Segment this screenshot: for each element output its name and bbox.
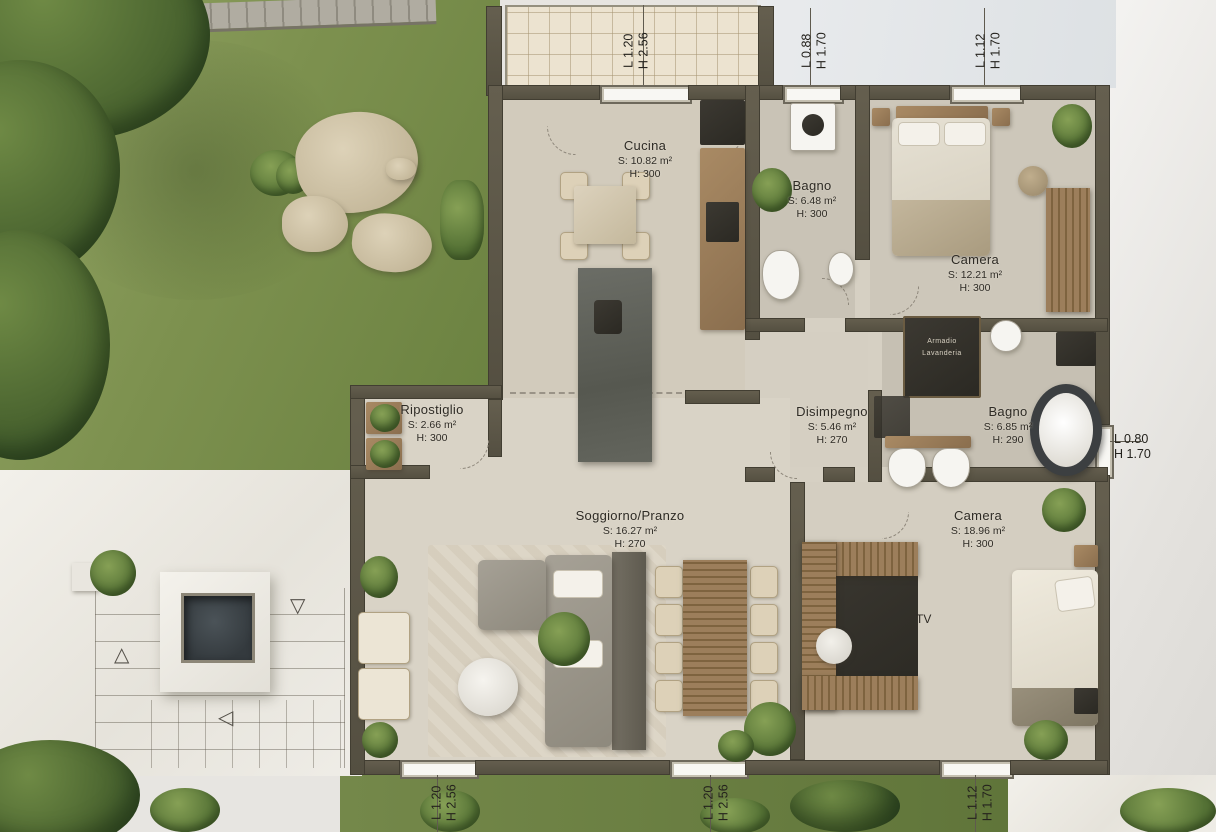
toilet bbox=[888, 448, 926, 488]
sofa-console bbox=[612, 552, 646, 750]
room-name: Camera bbox=[915, 252, 1035, 269]
wall-right bbox=[1095, 85, 1110, 425]
dim-width: L 1.20 bbox=[701, 767, 716, 832]
window-top-left bbox=[600, 85, 692, 104]
patio-side-wall bbox=[486, 6, 502, 96]
dim-width: L 1.20 bbox=[429, 767, 444, 832]
room-area: S: 2.66 m² bbox=[372, 419, 492, 432]
garden-reeds bbox=[440, 180, 484, 260]
room-height: H: 300 bbox=[915, 282, 1035, 295]
wall-lower-horizontal bbox=[745, 467, 775, 482]
wall-left-upper bbox=[488, 85, 503, 400]
room-area: S: 18.96 m² bbox=[918, 525, 1038, 538]
wall-kitchen-stub bbox=[685, 390, 760, 404]
kitchen-table bbox=[574, 186, 636, 244]
room-area: S: 12.21 m² bbox=[915, 269, 1035, 282]
dim-width: L 1.12 bbox=[965, 767, 980, 832]
terrace-stairs-lower bbox=[125, 700, 343, 768]
dining-chair bbox=[655, 566, 683, 598]
coffee-table bbox=[458, 658, 518, 716]
bedroom-plant bbox=[1024, 720, 1068, 760]
dining-chair bbox=[655, 642, 683, 674]
patio-side-wall bbox=[758, 6, 774, 96]
room-height: H: 300 bbox=[918, 538, 1038, 551]
nightstand bbox=[1074, 545, 1098, 567]
dim-width: L 0.80 bbox=[1114, 432, 1170, 447]
room-label-bagno-right: Bagno S: 6.85 m² H: 290 bbox=[948, 404, 1068, 448]
room-name: Cucina bbox=[585, 138, 705, 155]
outdoor-right-area bbox=[1108, 0, 1216, 832]
bottom-right-bush bbox=[1120, 788, 1216, 832]
dim-bottom-left: L 1.20 H 2.56 bbox=[429, 767, 459, 832]
bed-pillow bbox=[944, 122, 986, 146]
sofa-chaise bbox=[478, 560, 546, 630]
bedroom-plant bbox=[1052, 104, 1092, 148]
stair-arrow-down-icon: ▽ bbox=[290, 596, 305, 616]
dim-width: L 1.20 bbox=[621, 15, 636, 87]
planter bbox=[362, 722, 398, 758]
dining-chair bbox=[655, 680, 683, 712]
wall-bottom bbox=[1010, 760, 1108, 775]
room-area: S: 10.82 m² bbox=[585, 155, 705, 168]
closet-label: Armadio Lavanderia bbox=[905, 336, 979, 360]
bidet bbox=[932, 448, 970, 488]
dim-right: L 0.80 H 1.70 bbox=[1114, 432, 1170, 462]
wall-top bbox=[688, 85, 783, 100]
wall-top bbox=[488, 85, 600, 100]
vanity-counter bbox=[1056, 332, 1096, 366]
window-top-right bbox=[950, 85, 1024, 104]
living-plant bbox=[718, 730, 754, 762]
dim-bottom-middle: L 1.20 H 2.56 bbox=[701, 767, 731, 832]
nightstand bbox=[992, 108, 1010, 126]
wall-bottom bbox=[475, 760, 670, 775]
room-label-camera-bottom: Camera S: 18.96 m² H: 300 bbox=[918, 508, 1038, 552]
room-label-ripostiglio: Ripostiglio S: 2.66 m² H: 300 bbox=[372, 402, 492, 446]
round-basin bbox=[990, 320, 1022, 352]
wardrobe bbox=[1046, 188, 1090, 312]
palm-plant bbox=[150, 788, 220, 832]
bed-pillow bbox=[1054, 576, 1096, 613]
room-label-soggiorno: Soggiorno/Pranzo S: 16.27 m² H: 270 bbox=[550, 508, 710, 552]
wall-kitchen-right bbox=[745, 85, 760, 340]
room-label-bagno-top: Bagno S: 6.48 m² H: 300 bbox=[762, 178, 862, 222]
room-area: S: 16.27 m² bbox=[550, 525, 710, 538]
oven bbox=[706, 202, 739, 242]
side-table bbox=[816, 628, 852, 664]
wall-mid-horizontal bbox=[745, 318, 805, 332]
room-name: Camera bbox=[918, 508, 1038, 525]
closet-label-line2: Lavanderia bbox=[905, 348, 979, 360]
dim-width: L 0.88 bbox=[799, 15, 814, 87]
wall-lower-horizontal bbox=[823, 467, 855, 482]
room-name: Bagno bbox=[948, 404, 1068, 421]
planter bbox=[360, 556, 398, 598]
wall-mid-horizontal bbox=[845, 318, 905, 332]
lounge-chair bbox=[358, 668, 410, 720]
bedroom-stool bbox=[1074, 688, 1098, 714]
dim-top-middle: L 0.88 H 1.70 bbox=[799, 15, 829, 87]
lounge-chair bbox=[358, 612, 410, 664]
room-label-cucina: Cucina S: 10.82 m² H: 300 bbox=[585, 138, 705, 182]
room-height: H: 290 bbox=[948, 434, 1068, 447]
living-plant bbox=[538, 612, 590, 666]
room-label-disimpegno: Disimpegno S: 5.46 m² H: 270 bbox=[772, 404, 892, 448]
kitchen-island bbox=[578, 268, 652, 462]
wall-storage-top bbox=[350, 385, 502, 399]
island-sink bbox=[594, 300, 622, 334]
dining-chair bbox=[655, 604, 683, 636]
closet-label-line1: Armadio bbox=[905, 336, 979, 348]
dim-top-left: L 1.20 H 2.56 bbox=[621, 15, 651, 87]
plunge-pool bbox=[181, 593, 255, 663]
room-height: H: 300 bbox=[585, 168, 705, 181]
floor-plan-render: △ ◁ ▽ Armadio bbox=[0, 0, 1216, 832]
dim-width: L 1.12 bbox=[973, 15, 988, 87]
dim-height: H 1.70 bbox=[980, 767, 995, 832]
room-area: S: 6.48 m² bbox=[762, 195, 862, 208]
room-area: S: 6.85 m² bbox=[948, 421, 1068, 434]
bottom-shrub bbox=[790, 780, 900, 832]
wall-bottom bbox=[745, 760, 940, 775]
room-area: S: 5.46 m² bbox=[772, 421, 892, 434]
stair-arrow-left-icon: ◁ bbox=[218, 708, 233, 728]
dining-chair bbox=[750, 642, 778, 674]
room-height: H: 270 bbox=[772, 434, 892, 447]
dim-height: H 2.56 bbox=[444, 767, 459, 832]
room-name: Soggiorno/Pranzo bbox=[550, 508, 710, 525]
round-stool bbox=[1018, 166, 1048, 196]
bathroom-plant bbox=[1042, 488, 1086, 532]
stone-path-pebble bbox=[386, 158, 416, 180]
room-height: H: 300 bbox=[762, 208, 862, 221]
tv-label: TV bbox=[916, 612, 931, 626]
room-height: H: 300 bbox=[372, 432, 492, 445]
stair-arrow-up-icon: △ bbox=[114, 645, 129, 665]
room-height: H: 270 bbox=[550, 538, 710, 551]
dim-bottom-right: L 1.12 H 1.70 bbox=[965, 767, 995, 832]
room-name: Disimpegno bbox=[772, 404, 892, 421]
stone-path-slab bbox=[282, 196, 348, 252]
terrace-bush bbox=[90, 550, 136, 596]
bed-blanket bbox=[892, 200, 990, 256]
dining-chair bbox=[750, 566, 778, 598]
window-top-middle bbox=[783, 85, 844, 104]
dim-height: H 2.56 bbox=[716, 767, 731, 832]
room-name: Ripostiglio bbox=[372, 402, 492, 419]
dim-height: H 1.70 bbox=[988, 15, 1003, 87]
room-label-camera-top: Camera S: 12.21 m² H: 300 bbox=[915, 252, 1035, 296]
closet-panel: Armadio Lavanderia bbox=[903, 316, 981, 398]
nightstand bbox=[872, 108, 890, 126]
dining-chair bbox=[750, 604, 778, 636]
sofa-cushion bbox=[553, 570, 603, 598]
wall-bath-bedroom bbox=[855, 85, 870, 260]
dim-height: H 1.70 bbox=[1114, 447, 1170, 462]
dim-height: H 2.56 bbox=[636, 15, 651, 87]
dim-top-right: L 1.12 H 1.70 bbox=[973, 15, 1003, 87]
washer-door bbox=[802, 114, 824, 136]
dim-height: H 1.70 bbox=[814, 15, 829, 87]
bathroom-sink bbox=[828, 252, 854, 286]
room-name: Bagno bbox=[762, 178, 862, 195]
fridge bbox=[700, 100, 745, 145]
dining-table bbox=[683, 560, 747, 716]
tv-wall-bottom bbox=[802, 676, 918, 710]
bed-pillow bbox=[898, 122, 940, 146]
toilet-top-bath bbox=[762, 250, 800, 300]
